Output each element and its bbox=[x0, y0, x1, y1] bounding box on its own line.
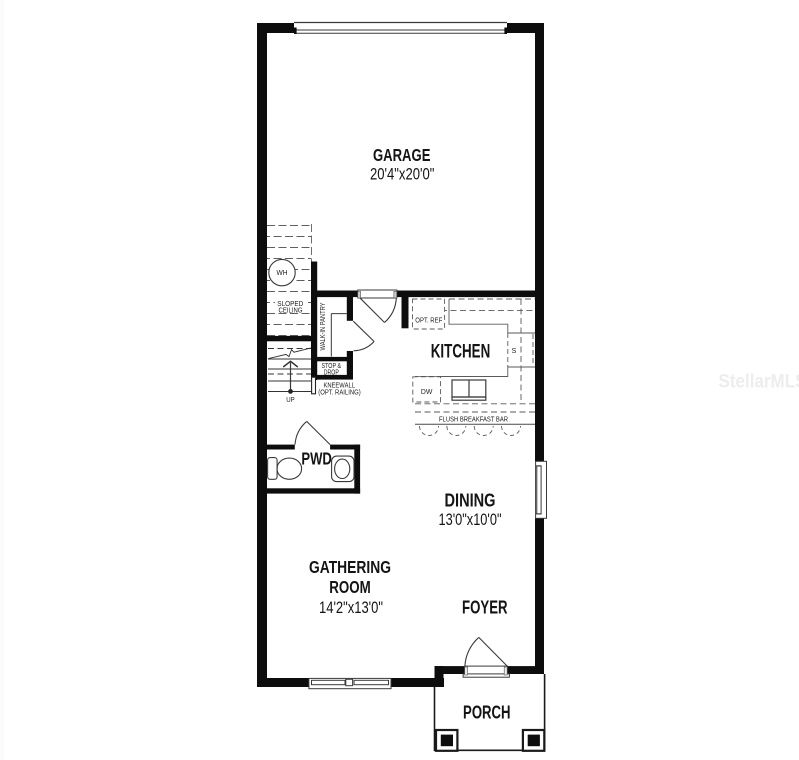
svg-text:OPT. REF: OPT. REF bbox=[415, 318, 442, 325]
svg-text:(OPT. RAILING): (OPT. RAILING) bbox=[318, 389, 361, 396]
svg-text:14'2"x13'0": 14'2"x13'0" bbox=[319, 599, 383, 617]
svg-text:GATHERING: GATHERING bbox=[309, 557, 391, 577]
svg-text:S: S bbox=[512, 348, 517, 355]
svg-text:CEILING: CEILING bbox=[279, 308, 303, 315]
svg-text:ROOM: ROOM bbox=[329, 577, 371, 597]
svg-text:DINING: DINING bbox=[445, 490, 496, 510]
svg-text:FLUSH BREAKFAST BAR: FLUSH BREAKFAST BAR bbox=[439, 416, 508, 423]
svg-text:GARAGE: GARAGE bbox=[373, 145, 431, 165]
svg-text:KITCHEN: KITCHEN bbox=[431, 341, 491, 363]
svg-text:PORCH: PORCH bbox=[463, 703, 511, 723]
svg-text:KNEEWALL: KNEEWALL bbox=[323, 382, 355, 389]
svg-text:UP: UP bbox=[286, 397, 295, 404]
svg-text:WALK-IN PANTRY: WALK-IN PANTRY bbox=[320, 302, 327, 350]
svg-text:WH: WH bbox=[277, 270, 288, 277]
svg-text:20'4"x20'0": 20'4"x20'0" bbox=[370, 166, 435, 184]
svg-text:DW: DW bbox=[421, 389, 433, 396]
svg-text:StellarMLS: StellarMLS bbox=[719, 371, 799, 393]
svg-text:13'0"x10'0": 13'0"x10'0" bbox=[439, 511, 502, 529]
svg-text:FOYER: FOYER bbox=[462, 598, 508, 618]
svg-text:PWD: PWD bbox=[301, 448, 332, 468]
